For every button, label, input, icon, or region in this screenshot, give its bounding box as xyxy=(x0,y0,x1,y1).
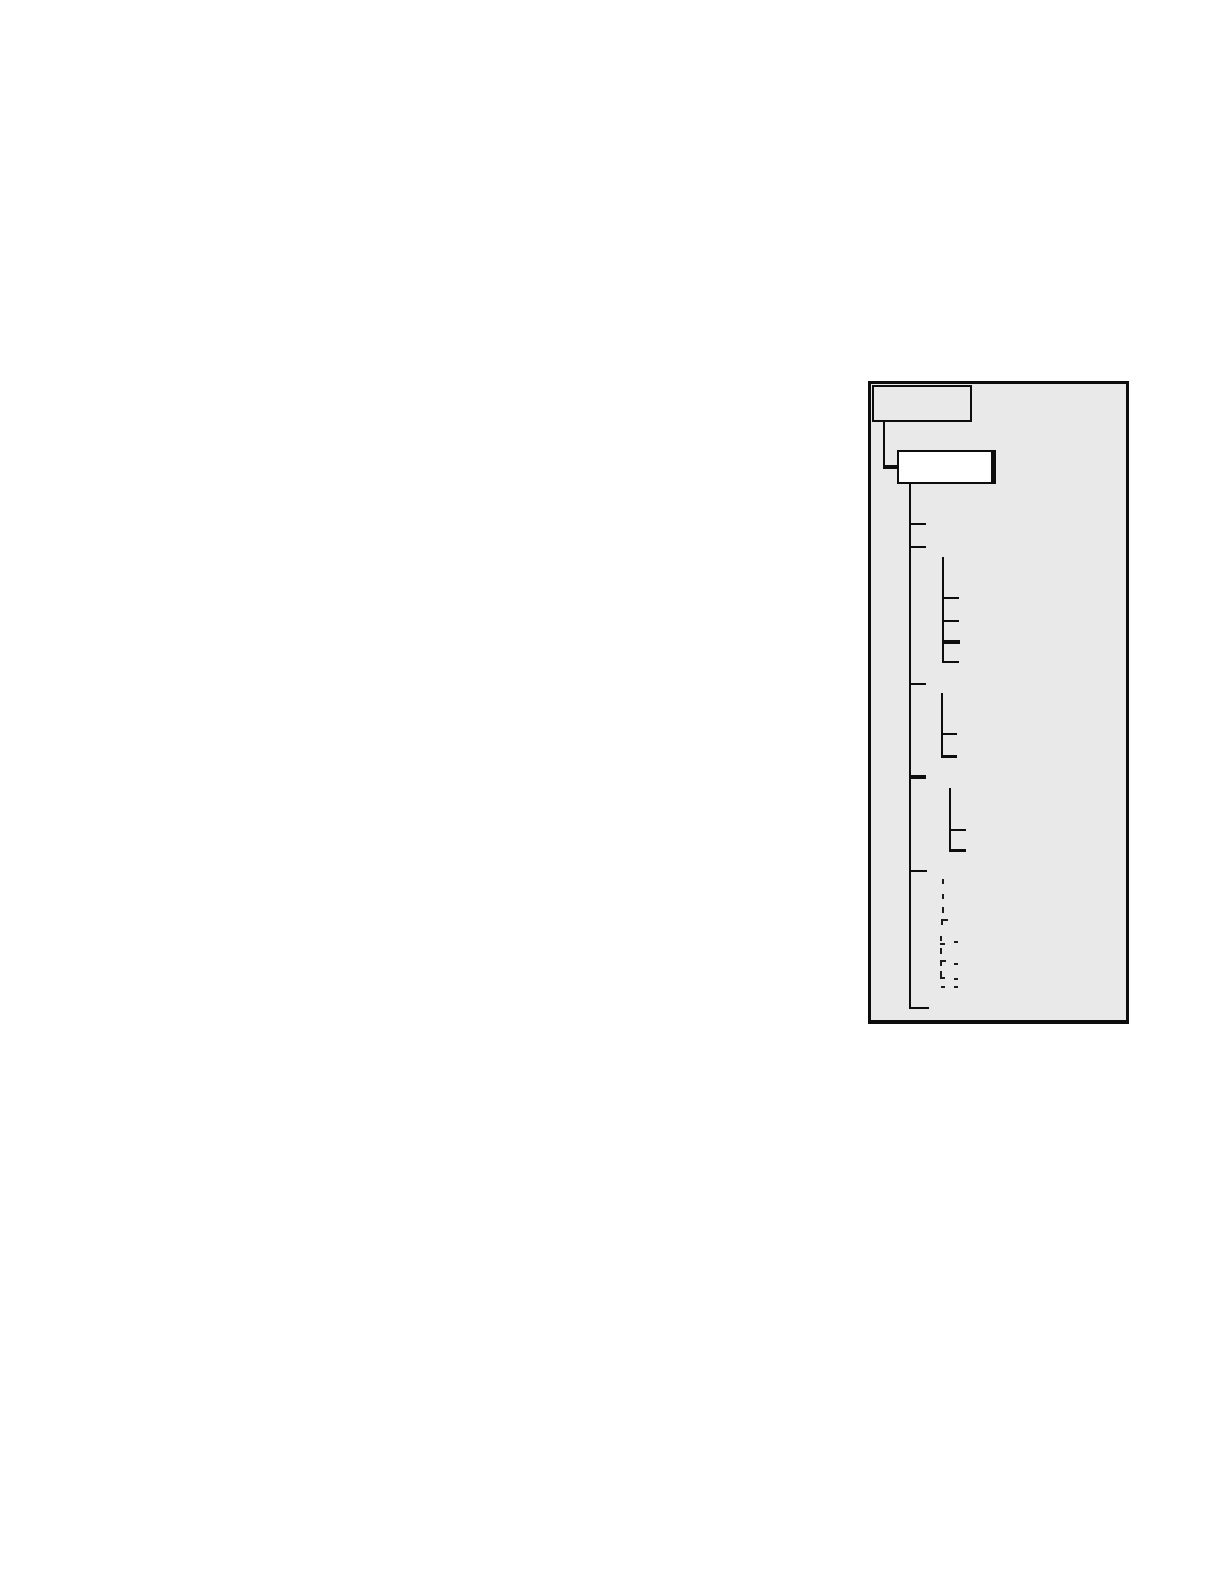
tiny-mark xyxy=(940,948,942,954)
trunk-tick-5 xyxy=(909,870,927,872)
tiny-mark xyxy=(954,941,958,943)
tiny-mark xyxy=(940,936,942,941)
branch3-foot xyxy=(949,849,966,852)
trunk-vertical xyxy=(909,484,911,1009)
branch3-tick-1 xyxy=(949,829,966,831)
tiny-mark xyxy=(942,907,944,913)
trunk-tick-3 xyxy=(909,683,926,685)
tiny-mark xyxy=(940,943,945,945)
branch1-tick-2 xyxy=(942,620,959,622)
tiny-mark xyxy=(954,963,958,965)
trunk-tick-4-thick xyxy=(909,775,926,779)
root-node-box xyxy=(872,385,972,422)
branch1-foot xyxy=(942,661,959,663)
document-page xyxy=(0,0,1224,1584)
child-node-box xyxy=(897,450,996,484)
branch2-vertical xyxy=(941,693,943,758)
tiny-mark xyxy=(954,978,958,980)
trunk-tick-1 xyxy=(909,523,926,525)
tiny-mark xyxy=(941,986,945,988)
trunk-foot xyxy=(909,1007,929,1009)
branch2-tick-1 xyxy=(941,733,957,735)
elbow-horizontal-thick xyxy=(883,465,898,469)
branch1-tick-1 xyxy=(942,597,959,599)
tiny-mark xyxy=(940,977,945,979)
tiny-mark xyxy=(940,960,942,966)
tiny-mark xyxy=(941,919,943,925)
tiny-mark xyxy=(942,894,944,899)
elbow-vertical xyxy=(883,422,885,468)
tiny-mark xyxy=(942,879,944,884)
branch2-foot-thick xyxy=(941,755,957,758)
tiny-mark xyxy=(954,986,958,988)
branch1-tick-3-thick xyxy=(942,640,960,644)
branch1-vertical xyxy=(942,557,944,663)
trunk-tick-2 xyxy=(909,546,926,548)
branch3-vertical xyxy=(949,788,951,851)
